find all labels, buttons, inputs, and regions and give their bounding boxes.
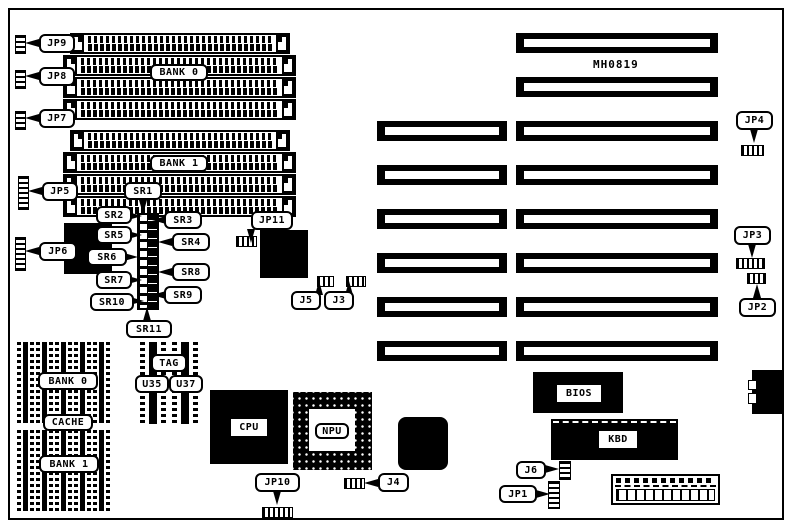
j4-pointer bbox=[364, 479, 378, 487]
expansion-slot bbox=[516, 297, 718, 317]
chipset-chip bbox=[398, 417, 448, 470]
expansion-slot bbox=[516, 77, 718, 97]
j3-label: J3 bbox=[324, 291, 354, 310]
jp8-pointer bbox=[25, 72, 39, 80]
bios-label: BIOS bbox=[557, 385, 601, 402]
jp10-jumper bbox=[262, 507, 293, 518]
cache-chip bbox=[17, 430, 34, 511]
expansion-slot bbox=[377, 121, 507, 141]
j4-jumper bbox=[344, 478, 365, 489]
expansion-slot bbox=[516, 209, 718, 229]
jp8-label: JP8 bbox=[39, 67, 75, 86]
simm-slot bbox=[63, 174, 296, 195]
tag-label: TAG bbox=[151, 354, 187, 372]
jp5-pointer bbox=[28, 187, 42, 195]
keyboard-connector-pin bbox=[748, 393, 757, 404]
jp7-label: JP7 bbox=[39, 109, 75, 128]
jp9-label: JP9 bbox=[39, 34, 75, 53]
sr4-pointer bbox=[158, 238, 172, 246]
dip-switch bbox=[611, 474, 720, 505]
simm-slot bbox=[70, 130, 290, 151]
sr2-label: SR2 bbox=[96, 206, 132, 224]
jp11-label: JP11 bbox=[251, 211, 293, 230]
jp10-pointer bbox=[273, 491, 281, 505]
cpu-label: CPU bbox=[231, 419, 267, 436]
bank1-memory-label: BANK 1 bbox=[150, 155, 208, 172]
expansion-slot bbox=[377, 209, 507, 229]
jp2-label: JP2 bbox=[739, 298, 776, 317]
j6-pointer bbox=[545, 465, 559, 473]
expansion-slot bbox=[516, 253, 718, 273]
u37-label: U37 bbox=[169, 375, 203, 393]
jp2-pointer bbox=[753, 284, 761, 298]
keyboard-connector-pin bbox=[748, 380, 757, 390]
npu-label: NPU bbox=[315, 423, 349, 439]
kbd-label: KBD bbox=[599, 431, 637, 448]
sr8-label: SR8 bbox=[172, 263, 210, 281]
sr11-label: SR11 bbox=[126, 320, 172, 338]
expansion-slot bbox=[377, 165, 507, 185]
cache-bank1-label: BANK 1 bbox=[39, 455, 99, 473]
sr8-pointer bbox=[158, 268, 172, 276]
sr6-label: SR6 bbox=[87, 248, 127, 266]
jp6-pointer bbox=[25, 247, 39, 255]
expansion-slot bbox=[377, 297, 507, 317]
part-number: MH0819 bbox=[593, 58, 639, 71]
expansion-slot bbox=[516, 341, 718, 361]
expansion-slot bbox=[377, 253, 507, 273]
expansion-slot bbox=[516, 121, 718, 141]
motherboard-diagram: BANK 0 BANK 1 JP9 JP8 JP7 JP5 JP6 SR1 SR… bbox=[0, 0, 791, 527]
expansion-slot bbox=[516, 165, 718, 185]
sr9-label: SR9 bbox=[164, 286, 202, 304]
cache-label: CACHE bbox=[43, 414, 93, 431]
jp11-pointer bbox=[247, 229, 255, 243]
jp6-label: JP6 bbox=[39, 242, 77, 261]
jp10-label: JP10 bbox=[255, 473, 300, 492]
jp4-pointer bbox=[750, 129, 758, 143]
jp9-pointer bbox=[25, 39, 39, 47]
expansion-slot bbox=[516, 33, 718, 53]
sr1-label: SR1 bbox=[124, 182, 162, 200]
jp4-jumper bbox=[741, 145, 764, 156]
jp1-label: JP1 bbox=[499, 485, 537, 503]
jp7-pointer bbox=[25, 114, 39, 122]
cache-bank0-label: BANK 0 bbox=[38, 372, 98, 390]
keyboard-connector bbox=[752, 370, 784, 414]
jp1-pointer bbox=[536, 490, 550, 498]
sr3-label: SR3 bbox=[164, 211, 202, 229]
j6-jumper bbox=[559, 461, 571, 480]
j4-label: J4 bbox=[378, 473, 409, 492]
j6-label: J6 bbox=[516, 461, 546, 479]
jp2-jumper bbox=[747, 273, 766, 284]
sr11-pointer bbox=[143, 307, 151, 321]
jp3-pointer bbox=[748, 244, 756, 258]
jp4-label: JP4 bbox=[736, 111, 773, 130]
j5-label: J5 bbox=[291, 291, 321, 310]
jp11-chip bbox=[260, 230, 308, 278]
expansion-slot bbox=[377, 341, 507, 361]
sr10-label: SR10 bbox=[90, 293, 134, 311]
jp3-label: JP3 bbox=[734, 226, 771, 245]
sr5-label: SR5 bbox=[96, 226, 132, 244]
u35-label: U35 bbox=[135, 375, 169, 393]
jp5-label: JP5 bbox=[42, 182, 78, 201]
jp3-jumper bbox=[736, 258, 765, 269]
cache-chip bbox=[17, 342, 34, 423]
sr7-label: SR7 bbox=[96, 271, 132, 289]
bank0-memory-label: BANK 0 bbox=[150, 64, 208, 81]
sr4-label: SR4 bbox=[172, 233, 210, 251]
simm-slot bbox=[70, 33, 290, 54]
simm-slot bbox=[63, 99, 296, 120]
